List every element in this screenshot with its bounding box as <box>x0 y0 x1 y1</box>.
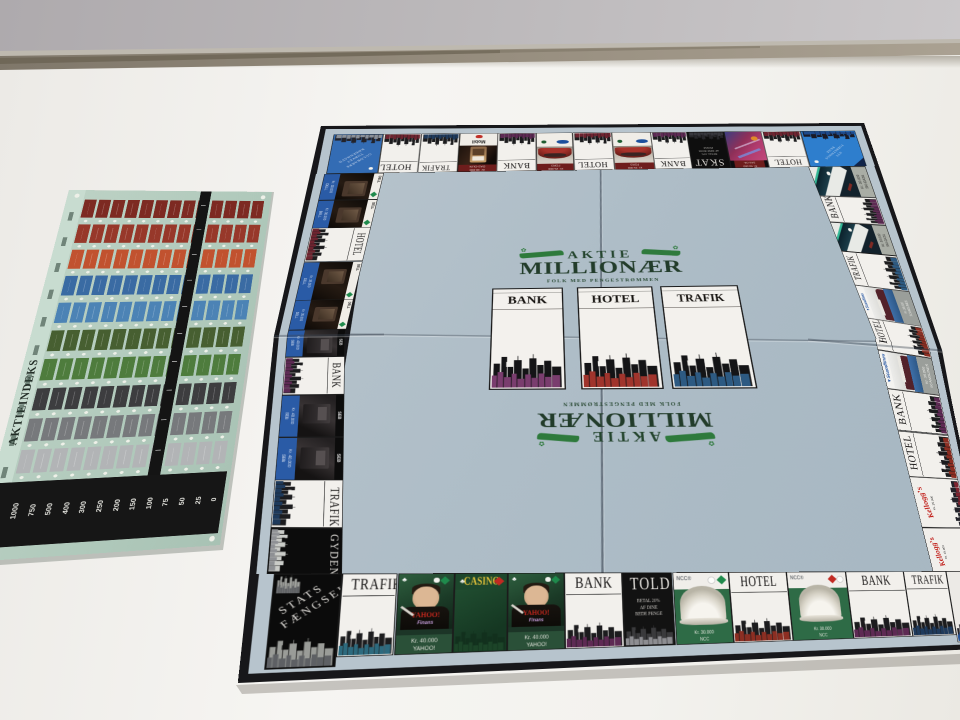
svg-text:FOLK MED PENGESTRØMMEN: FOLK MED PENGESTRØMMEN <box>562 401 681 407</box>
svg-text:BANK: BANK <box>507 295 547 307</box>
svg-text:HOTEL: HOTEL <box>591 293 640 306</box>
svg-text:TRAFIK: TRAFIK <box>676 292 725 305</box>
svg-text:MILLIONÆR: MILLIONÆR <box>536 408 714 431</box>
svg-text:FOLK MED PENGESTRØMMEN: FOLK MED PENGESTRØMMEN <box>547 277 660 284</box>
svg-text:MILLIONÆR: MILLIONÆR <box>519 256 683 278</box>
